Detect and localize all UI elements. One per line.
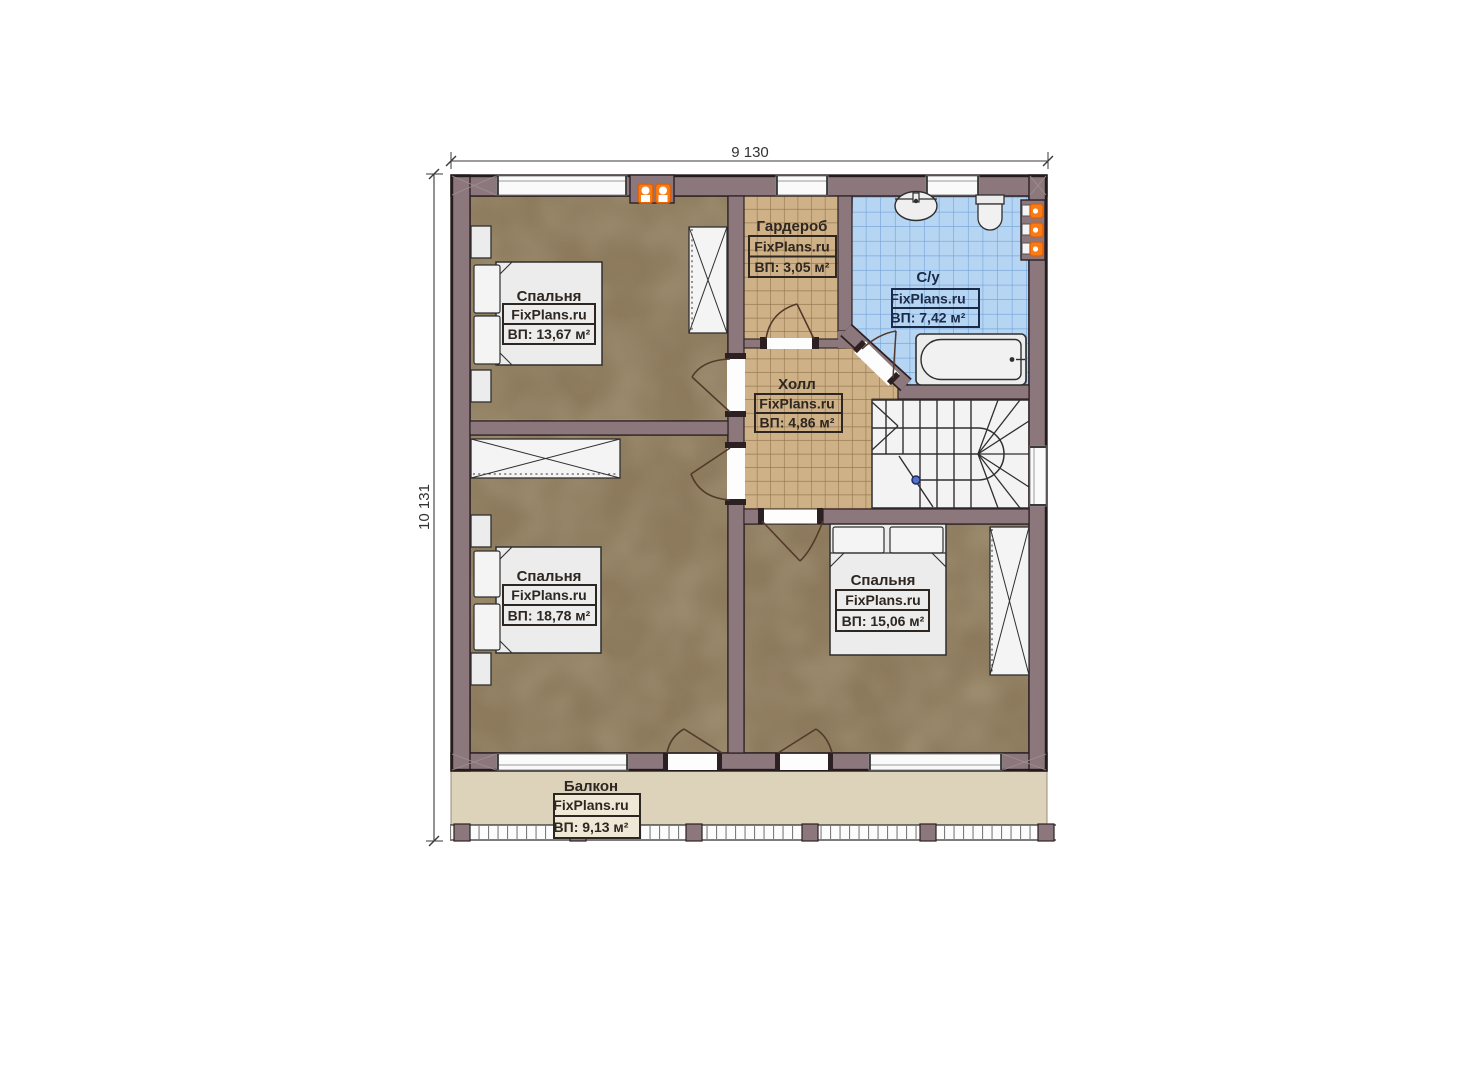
svg-text:ВП: 18,78 м²: ВП: 18,78 м² (508, 608, 591, 624)
svg-text:Спальня: Спальня (851, 572, 916, 589)
svg-text:С/у: С/у (916, 269, 940, 286)
svg-text:FixPlans.ru: FixPlans.ru (511, 307, 586, 323)
svg-text:FixPlans.ru: FixPlans.ru (759, 396, 834, 412)
svg-text:Спальня: Спальня (517, 288, 582, 305)
svg-text:ВП: 3,05 м²: ВП: 3,05 м² (755, 259, 830, 275)
svg-text:FixPlans.ru: FixPlans.ru (845, 592, 920, 608)
svg-text:Гардероб: Гардероб (757, 218, 828, 235)
svg-text:FixPlans.ru: FixPlans.ru (890, 291, 965, 307)
svg-text:FixPlans.ru: FixPlans.ru (553, 797, 628, 813)
svg-text:ВП: 15,06 м²: ВП: 15,06 м² (842, 613, 925, 629)
svg-text:10 131: 10 131 (416, 484, 433, 530)
svg-text:Спальня: Спальня (517, 568, 582, 585)
svg-text:ВП: 7,42 м²: ВП: 7,42 м² (891, 310, 966, 326)
svg-text:ВП: 9,13 м²: ВП: 9,13 м² (554, 819, 629, 835)
svg-text:ВП: 4,86 м²: ВП: 4,86 м² (760, 415, 835, 431)
svg-text:ВП: 13,67 м²: ВП: 13,67 м² (508, 326, 591, 342)
svg-text:9 130: 9 130 (731, 144, 769, 161)
svg-text:Холл: Холл (778, 376, 816, 393)
svg-text:FixPlans.ru: FixPlans.ru (754, 239, 829, 255)
svg-text:Балкон: Балкон (564, 778, 618, 795)
svg-text:FixPlans.ru: FixPlans.ru (511, 587, 586, 603)
